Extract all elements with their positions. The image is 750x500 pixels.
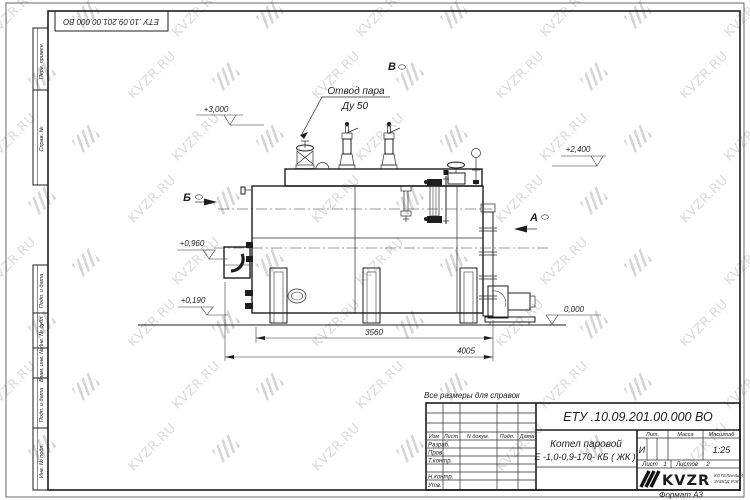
logo-text: KVZR — [662, 473, 710, 489]
stamp-perv-primen: Перв. примен. — [39, 43, 45, 80]
row-prov: Пров. — [428, 451, 444, 457]
lit-value: И — [639, 445, 646, 455]
col-podp: Подп. — [500, 434, 515, 440]
drawing-sheet: KVZR.RUKVZR.RUKVZR.RUKVZR.RUKVZR.RUKVZR.… — [0, 0, 750, 500]
safety-valve-1 — [339, 122, 358, 169]
svg-text:+3,000: +3,000 — [204, 105, 229, 114]
col-data: Дата — [519, 434, 535, 440]
drawing-canvas: ЕТУ .10.09.201.00.000 ВО Перв. примен. С… — [0, 0, 750, 500]
elevation-2400: +2,400 — [552, 145, 606, 166]
svg-text:Б: Б — [183, 192, 191, 204]
row-utv: Утв. — [427, 483, 442, 489]
steam-outlet-callout: Отвод пара Ду 50 — [300, 86, 390, 139]
steam-outlet-valve — [296, 141, 314, 169]
svg-text:+2,400: +2,400 — [566, 145, 591, 154]
dome-fitting — [316, 163, 329, 169]
view-label-a: А — [514, 212, 549, 233]
scale-label: Масштаб — [709, 432, 736, 438]
margin-stamps: Перв. примен. Справ. № Подп. и дата Инв.… — [33, 28, 48, 490]
logo-sub-1: КОТЕЛЬНЫЙ — [714, 471, 744, 478]
elevation-3000: +3,000 — [196, 105, 264, 125]
callout-text-2: Ду 50 — [341, 101, 368, 112]
row-tkontr: Т.контр. — [428, 459, 452, 465]
format-note: Формат А3 — [659, 491, 703, 500]
col-list: Лист — [443, 434, 459, 440]
svg-text:3560: 3560 — [365, 328, 383, 337]
elevation-0960: +0,960 — [177, 239, 228, 259]
product-name-1: Котел паровой — [550, 439, 622, 450]
manhole — [288, 289, 306, 303]
stamp-inv-podl: Инв. № подл. — [39, 444, 45, 478]
view-label-b: Б — [183, 192, 217, 206]
stamp-inv-dubl: Инв. № дубл. — [39, 315, 45, 349]
stamp-vzam-inv: Взам. инв. № — [39, 348, 45, 382]
sheets-value: 2 — [705, 462, 710, 468]
kvzr-logo: KVZR КОТЕЛЬНЫЙ ЗАВОД РЭП — [641, 471, 744, 489]
dimension-4005: 4005 — [225, 282, 493, 361]
product-name-2: Е -1,0-0,9-170- КБ ( ЖК ) — [534, 452, 635, 462]
col-doc: N докум. — [467, 434, 489, 440]
title-block: Все размеры для справок Изм Лист N докум… — [424, 391, 744, 500]
lit-label: Лит. — [645, 432, 659, 438]
corner-doc-number: ЕТУ .10.09.201.00.000 ВО — [63, 17, 159, 26]
view-label-v: В — [388, 61, 405, 73]
row-razrab: Разраб. — [428, 443, 450, 449]
svg-text:0,000: 0,000 — [564, 305, 585, 314]
gauge-siphon — [472, 149, 481, 186]
elevation-0000: 0,000 — [546, 305, 601, 324]
col-izm: Изм — [429, 434, 439, 440]
stamp-podp-data-1: Подп. и дата — [39, 274, 45, 308]
safety-valve-2 — [381, 122, 400, 169]
mass-label: Масса — [677, 432, 693, 438]
sheet-value: 1 — [663, 462, 666, 468]
callout-text-1: Отвод пара — [327, 86, 385, 97]
stamp-sprav-no: Справ. № — [39, 126, 45, 151]
corner-stamp: ЕТУ .10.09.201.00.000 ВО — [55, 11, 168, 31]
sheets-label: Листов — [675, 462, 698, 468]
annotations: Отвод пара Ду 50 +3,000 +2,400 +0,960 — [177, 61, 606, 361]
svg-text:+0,960: +0,960 — [180, 239, 205, 248]
support-legs — [270, 268, 477, 323]
svg-text:В: В — [388, 61, 396, 73]
boiler-side-view — [138, 122, 566, 325]
svg-text:А: А — [529, 212, 538, 224]
row-nkontr: Н.контр. — [428, 475, 453, 481]
scale-value: 1:25 — [713, 445, 732, 455]
svg-text:+0,190: +0,190 — [181, 296, 206, 305]
reference-note: Все размеры для справок — [424, 391, 521, 400]
title-doc-number: ЕТУ .10.09.201.00.000 ВО — [563, 410, 713, 424]
water-gauge-1 — [401, 186, 411, 222]
end-valve — [448, 162, 466, 184]
sheet-label: Лист — [641, 462, 657, 468]
water-gauge-2 — [424, 170, 449, 224]
logo-sub-2: ЗАВОД РЭП — [714, 479, 741, 484]
svg-text:4005: 4005 — [457, 347, 475, 356]
elevation-0190: +0,190 — [178, 296, 228, 315]
stamp-podp-data-2: Подп. и дата — [39, 388, 45, 422]
